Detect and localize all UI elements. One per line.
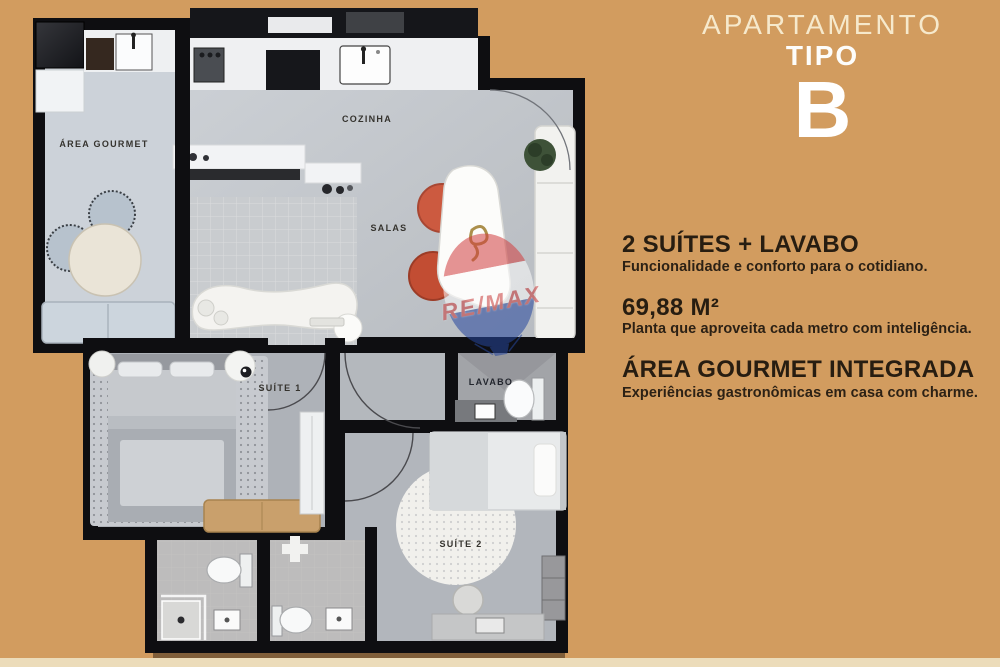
fridge <box>36 22 84 68</box>
feature-suites-heading: 2 SUÍTES + LAVABO <box>622 232 992 258</box>
title-apartamento: APARTAMENTO <box>655 10 990 40</box>
room-label-cozinha: COZINHA <box>302 114 432 124</box>
kitchen-upper-cabinets <box>190 8 478 38</box>
bottom-edge-strip <box>0 658 1000 667</box>
nightstand <box>89 351 115 377</box>
room-label-area-gourmet: ÁREA GOURMET <box>39 139 169 149</box>
title-block: APARTAMENTO TIPO B <box>655 10 990 148</box>
feature-area-heading: 69,88 M² <box>622 295 992 321</box>
floorplan: ÁREA GOURMET COZINHA SALAS SUÍTE 1 LAVAB… <box>28 8 594 658</box>
lamp <box>225 351 255 381</box>
room-label-suite-2: SUÍTE 2 <box>396 539 526 549</box>
cooktop <box>266 50 320 90</box>
plant <box>524 139 556 171</box>
info-panel: APARTAMENTO TIPO B 2 SUÍTES + LAVABO Fun… <box>600 0 1000 667</box>
feature-area-description: Planta que aproveita cada metro com inte… <box>622 321 994 337</box>
gourmet-round-table <box>69 224 141 296</box>
feature-suites-description: Funcionalidade e conforto para o cotidia… <box>622 259 994 275</box>
kitchen-counter <box>190 38 478 90</box>
toilet-bowl <box>280 607 312 633</box>
marketing-flyer: { "background": { "color": "#d29c5f", "b… <box>0 0 1000 667</box>
feature-gourmet-heading: ÁREA GOURMET INTEGRADA <box>622 357 992 383</box>
title-letter-b: B <box>655 72 990 148</box>
remax-watermark: RE/MAX <box>414 221 568 383</box>
bathroom1-fixtures <box>157 540 257 641</box>
feature-gourmet-description: Experiências gastronômicas em casa com c… <box>622 385 994 401</box>
suite2-wardrobe <box>542 556 565 620</box>
desk-chair <box>453 585 483 615</box>
toilet-tank <box>240 554 252 587</box>
bathroom2-fixtures <box>270 536 365 641</box>
toilet-bowl <box>207 557 241 583</box>
room-label-salas: SALAS <box>324 223 454 233</box>
lounge-rug <box>180 197 362 345</box>
room-label-suite-1: SUÍTE 1 <box>215 383 345 393</box>
gourmet-dark-square <box>86 38 114 70</box>
lavabo-sink <box>475 404 495 419</box>
gourmet-cabinet <box>36 70 84 112</box>
